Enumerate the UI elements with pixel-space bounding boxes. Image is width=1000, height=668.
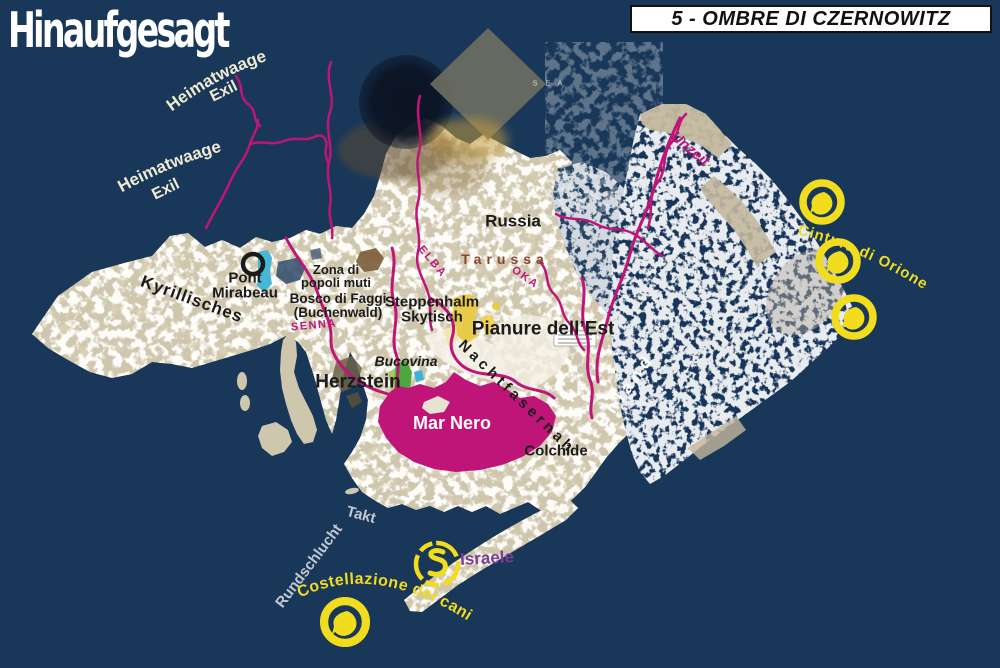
label-pont-mirabeau: Pont Mirabeau — [212, 271, 278, 302]
label-steppenhalm: Steppenhalm Skytisch — [385, 295, 479, 326]
label-basemap-sea: S E A — [533, 81, 566, 88]
dog-constellation-symbol — [322, 601, 368, 645]
page-title: 5 - OMBRE DI CZERNOWITZ — [671, 8, 950, 31]
brown-haze — [396, 142, 488, 194]
label-colchide: Colchide — [524, 444, 587, 459]
label-bucovina: Bucovina — [374, 354, 437, 368]
title-box: 5 - OMBRE DI CZERNOWITZ — [630, 5, 992, 33]
label-pianure-dell-est: Pianure dell’Est — [472, 320, 615, 339]
label-bosco-di-faggi: Bosco di Faggi (Buchenwald) — [290, 292, 387, 320]
label-tarussa: Tarussa — [461, 252, 549, 266]
map-page: Heimatwaage Heimatwaage Cintura di Orion… — [0, 0, 1000, 668]
label-zona-popoli-muti: Zona di popoli muti — [301, 263, 371, 290]
label-mar-nero: Mar Nero — [413, 414, 491, 432]
label-herzstein: Herzstein — [315, 373, 401, 392]
hinaufgesagt-logo: Hinaufgesagt — [8, 2, 228, 59]
label-israele: Israele — [460, 548, 515, 568]
label-russia: Russia — [485, 213, 541, 230]
orion-symbol-1 — [801, 183, 843, 223]
